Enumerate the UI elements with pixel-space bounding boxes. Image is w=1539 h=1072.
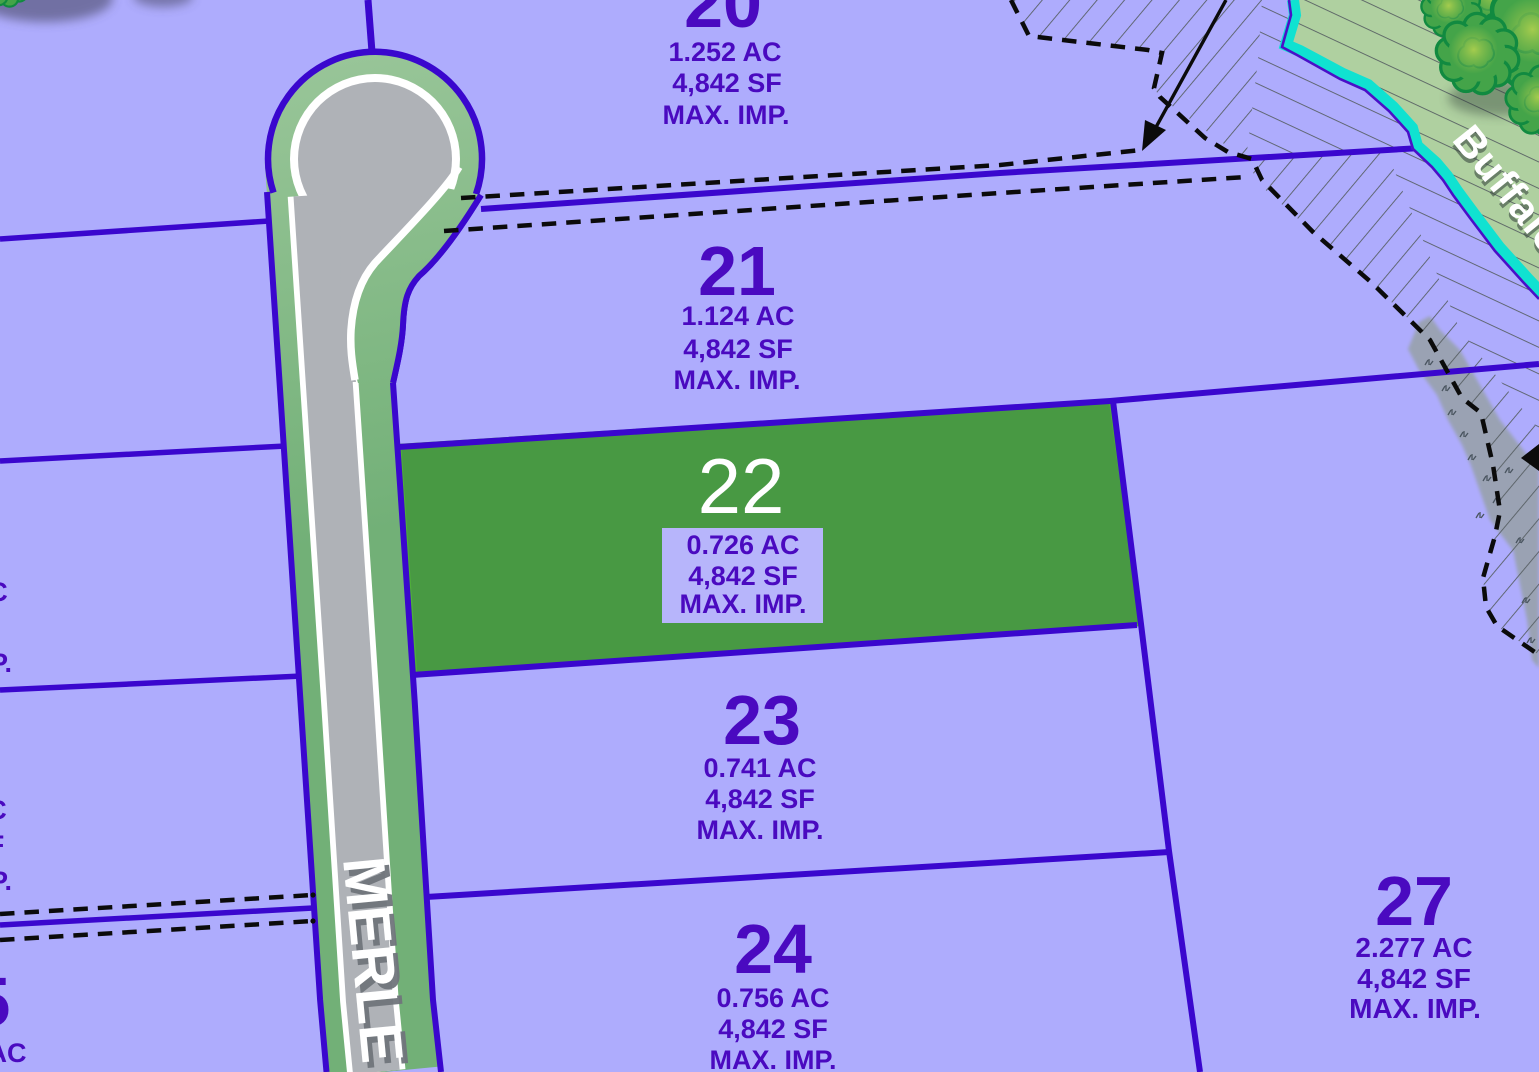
svg-text:1.252 AC: 1.252 AC [668, 37, 781, 67]
svg-text:0.756 AC: 0.756 AC [716, 983, 829, 1013]
svg-text:1.124 AC: 1.124 AC [681, 301, 794, 331]
svg-text:4,842 SF: 4,842 SF [1357, 963, 1471, 994]
svg-text:MAX. IMP.: MAX. IMP. [662, 100, 789, 130]
svg-text:2.277 AC: 2.277 AC [1355, 932, 1472, 963]
svg-text:MAX. IMP.: MAX. IMP. [709, 1045, 836, 1072]
svg-text:AC: AC [0, 1038, 27, 1068]
svg-text:5: 5 [0, 963, 10, 1041]
svg-text:MAX. IMP.: MAX. IMP. [679, 589, 806, 619]
svg-text:4,842 SF: 4,842 SF [683, 334, 793, 364]
svg-text:4,842 SF: 4,842 SF [718, 1014, 828, 1044]
svg-text:P.: P. [0, 648, 12, 678]
svg-text:MAX. IMP.: MAX. IMP. [1349, 993, 1481, 1024]
svg-text:27: 27 [1375, 862, 1453, 940]
svg-text:C: C [0, 795, 7, 825]
svg-text:4,842 SF: 4,842 SF [672, 68, 782, 98]
svg-text:22: 22 [698, 442, 785, 530]
svg-text:20: 20 [684, 0, 762, 42]
svg-text:0.726 AC: 0.726 AC [686, 530, 799, 560]
svg-text:24: 24 [734, 910, 812, 988]
svg-text:F: F [0, 830, 4, 860]
svg-text:MAX. IMP.: MAX. IMP. [673, 365, 800, 395]
svg-text:C: C [0, 577, 8, 607]
svg-text:4,842 SF: 4,842 SF [688, 561, 798, 591]
svg-text:MAX. IMP.: MAX. IMP. [696, 815, 823, 845]
svg-text:23: 23 [723, 681, 801, 759]
svg-text:4,842 SF: 4,842 SF [705, 784, 815, 814]
svg-text:0.741 AC: 0.741 AC [703, 753, 816, 783]
svg-text:P.: P. [0, 866, 12, 896]
svg-text:21: 21 [698, 232, 776, 310]
